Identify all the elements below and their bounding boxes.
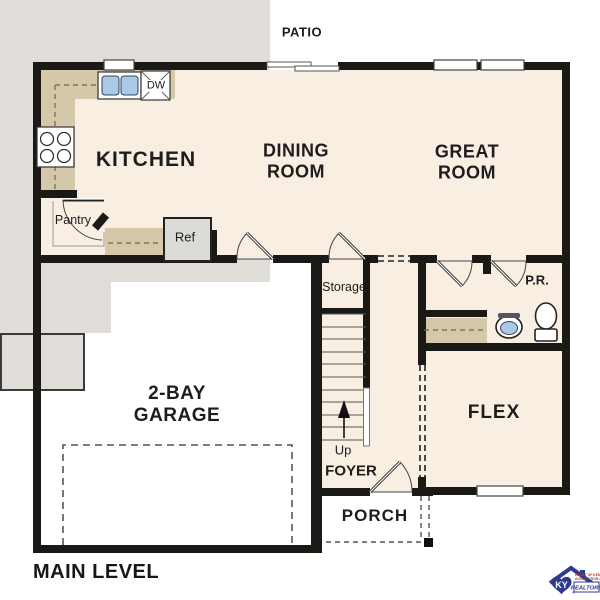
- refrigerator-label: Ref: [175, 231, 195, 246]
- logo-reg: ®: [572, 590, 575, 595]
- great-room-line1: GREAT: [435, 141, 499, 162]
- pantry-door-stop: [95, 215, 106, 228]
- kitchen-label: KITCHEN: [96, 148, 196, 172]
- plan-overlay: KY HEART OF KENTUCKY ASSOCIATION OF REAL…: [0, 0, 600, 600]
- patio-label: PATIO: [282, 26, 322, 41]
- powder-room-sink: [496, 313, 522, 338]
- cased-opening-hall: [378, 256, 410, 261]
- logo-line2: ASSOCIATION OF: [575, 577, 600, 581]
- toilet: [535, 303, 557, 341]
- logo-line3: REALTORS: [571, 586, 600, 592]
- pantry-label: Pantry: [55, 213, 91, 227]
- floor-plan: KY HEART OF KENTUCKY ASSOCIATION OF REAL…: [0, 0, 600, 600]
- foyer-label: FOYER: [325, 462, 377, 479]
- patio-sliding-door: [267, 62, 339, 71]
- garage-door-dashed: [63, 445, 292, 545]
- storage-label: Storage: [322, 280, 366, 294]
- garage-line2: GARAGE: [134, 405, 220, 427]
- up-arrow-icon: [338, 400, 350, 418]
- dining-room-line2: ROOM: [263, 161, 329, 182]
- stove: [37, 127, 74, 167]
- up-label: Up: [335, 444, 352, 459]
- cased-opening-flex: [420, 365, 425, 477]
- doors: [63, 200, 526, 492]
- logo-monogram: KY: [555, 580, 568, 590]
- great-room-label: GREAT ROOM: [435, 141, 499, 182]
- dishwasher-label: DW: [147, 80, 165, 93]
- stair-handrail: [364, 388, 370, 446]
- kitchen-sink: [98, 72, 141, 99]
- porch-post: [424, 538, 433, 547]
- realtor-logo: KY HEART OF KENTUCKY ASSOCIATION OF REAL…: [550, 568, 600, 595]
- great-room-line2: ROOM: [435, 162, 499, 183]
- dining-room-label: DINING ROOM: [263, 140, 329, 181]
- powder-room-label: P.R.: [525, 274, 549, 289]
- great-room-window-2: [481, 60, 524, 70]
- plan-title: MAIN LEVEL: [33, 561, 159, 584]
- porch-label: PORCH: [342, 506, 408, 526]
- great-room-window-1: [434, 60, 477, 70]
- dining-room-line1: DINING: [263, 140, 329, 161]
- garage-line1: 2-BAY: [134, 383, 220, 405]
- counter-edge-lines: [55, 85, 484, 330]
- flex-label: FLEX: [468, 402, 521, 424]
- stairs: [322, 314, 370, 446]
- garage-label: 2-BAY GARAGE: [134, 383, 220, 427]
- kitchen-window: [104, 60, 134, 70]
- flex-window: [477, 486, 523, 496]
